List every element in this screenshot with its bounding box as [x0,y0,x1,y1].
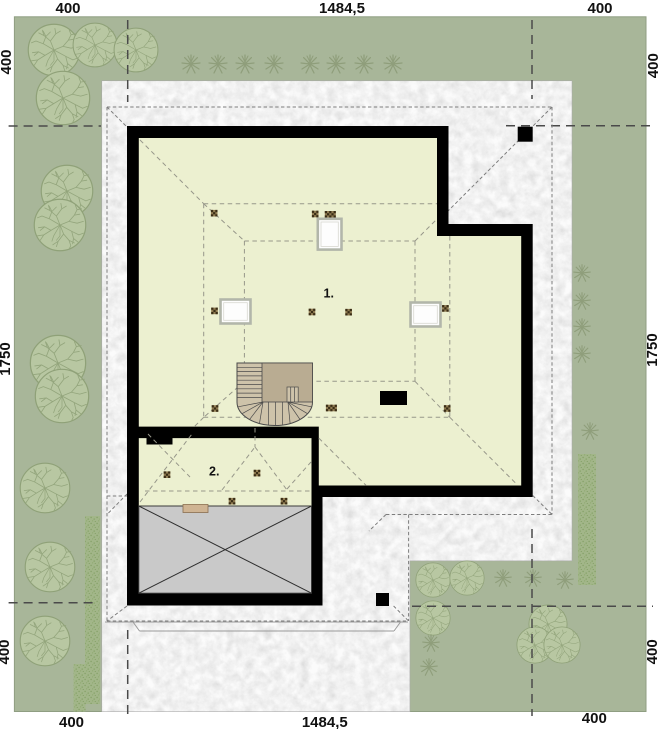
svg-text:400: 400 [0,49,15,74]
svg-text:1484,5: 1484,5 [319,0,365,17]
svg-text:1484,5: 1484,5 [302,714,348,729]
svg-text:400: 400 [587,0,612,17]
svg-text:400: 400 [59,714,84,729]
svg-text:400: 400 [582,710,607,727]
svg-text:400: 400 [55,0,80,17]
svg-text:400: 400 [0,639,13,664]
svg-text:1750: 1750 [644,333,660,366]
svg-text:400: 400 [645,53,660,78]
svg-text:2.: 2. [209,465,219,479]
svg-text:400: 400 [644,639,660,664]
svg-text:1.: 1. [324,287,334,301]
svg-text:1750: 1750 [0,342,14,375]
